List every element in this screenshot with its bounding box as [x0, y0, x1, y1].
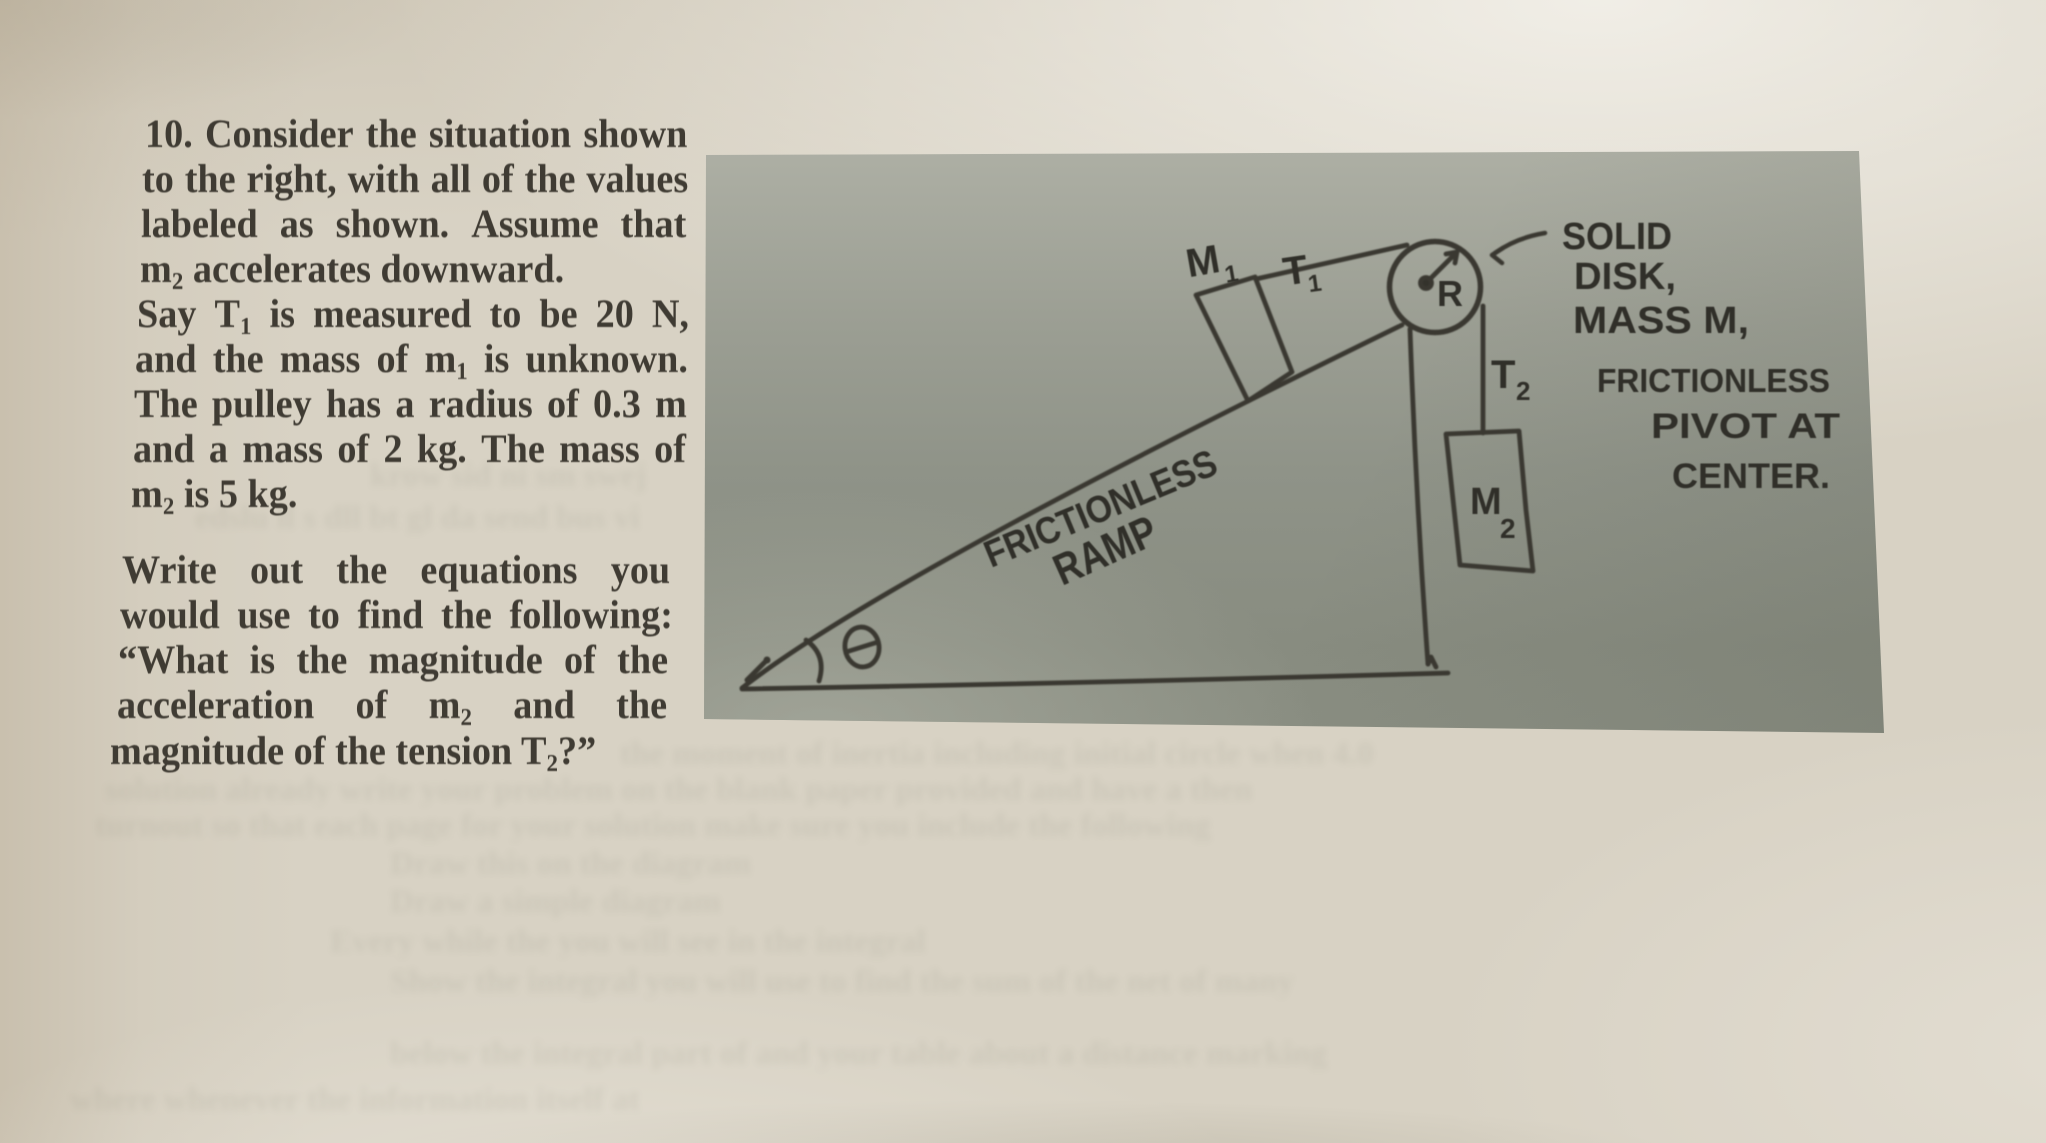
svg-text:T: T — [1491, 353, 1515, 397]
svg-text:R: R — [1437, 273, 1463, 314]
svg-text:CENTER.: CENTER. — [1672, 457, 1830, 496]
svg-text:M: M — [1470, 481, 1502, 523]
svg-text:FRICTIONLESS: FRICTIONLESS — [1597, 362, 1830, 399]
svg-text:SOLID: SOLID — [1562, 216, 1672, 258]
svg-text:PIVOT AT: PIVOT AT — [1651, 407, 1840, 446]
svg-text:DISK,: DISK, — [1574, 256, 1676, 298]
svg-text:2: 2 — [1500, 513, 1516, 544]
svg-text:2: 2 — [1516, 376, 1530, 406]
svg-text:MASS M,: MASS M, — [1573, 300, 1749, 342]
